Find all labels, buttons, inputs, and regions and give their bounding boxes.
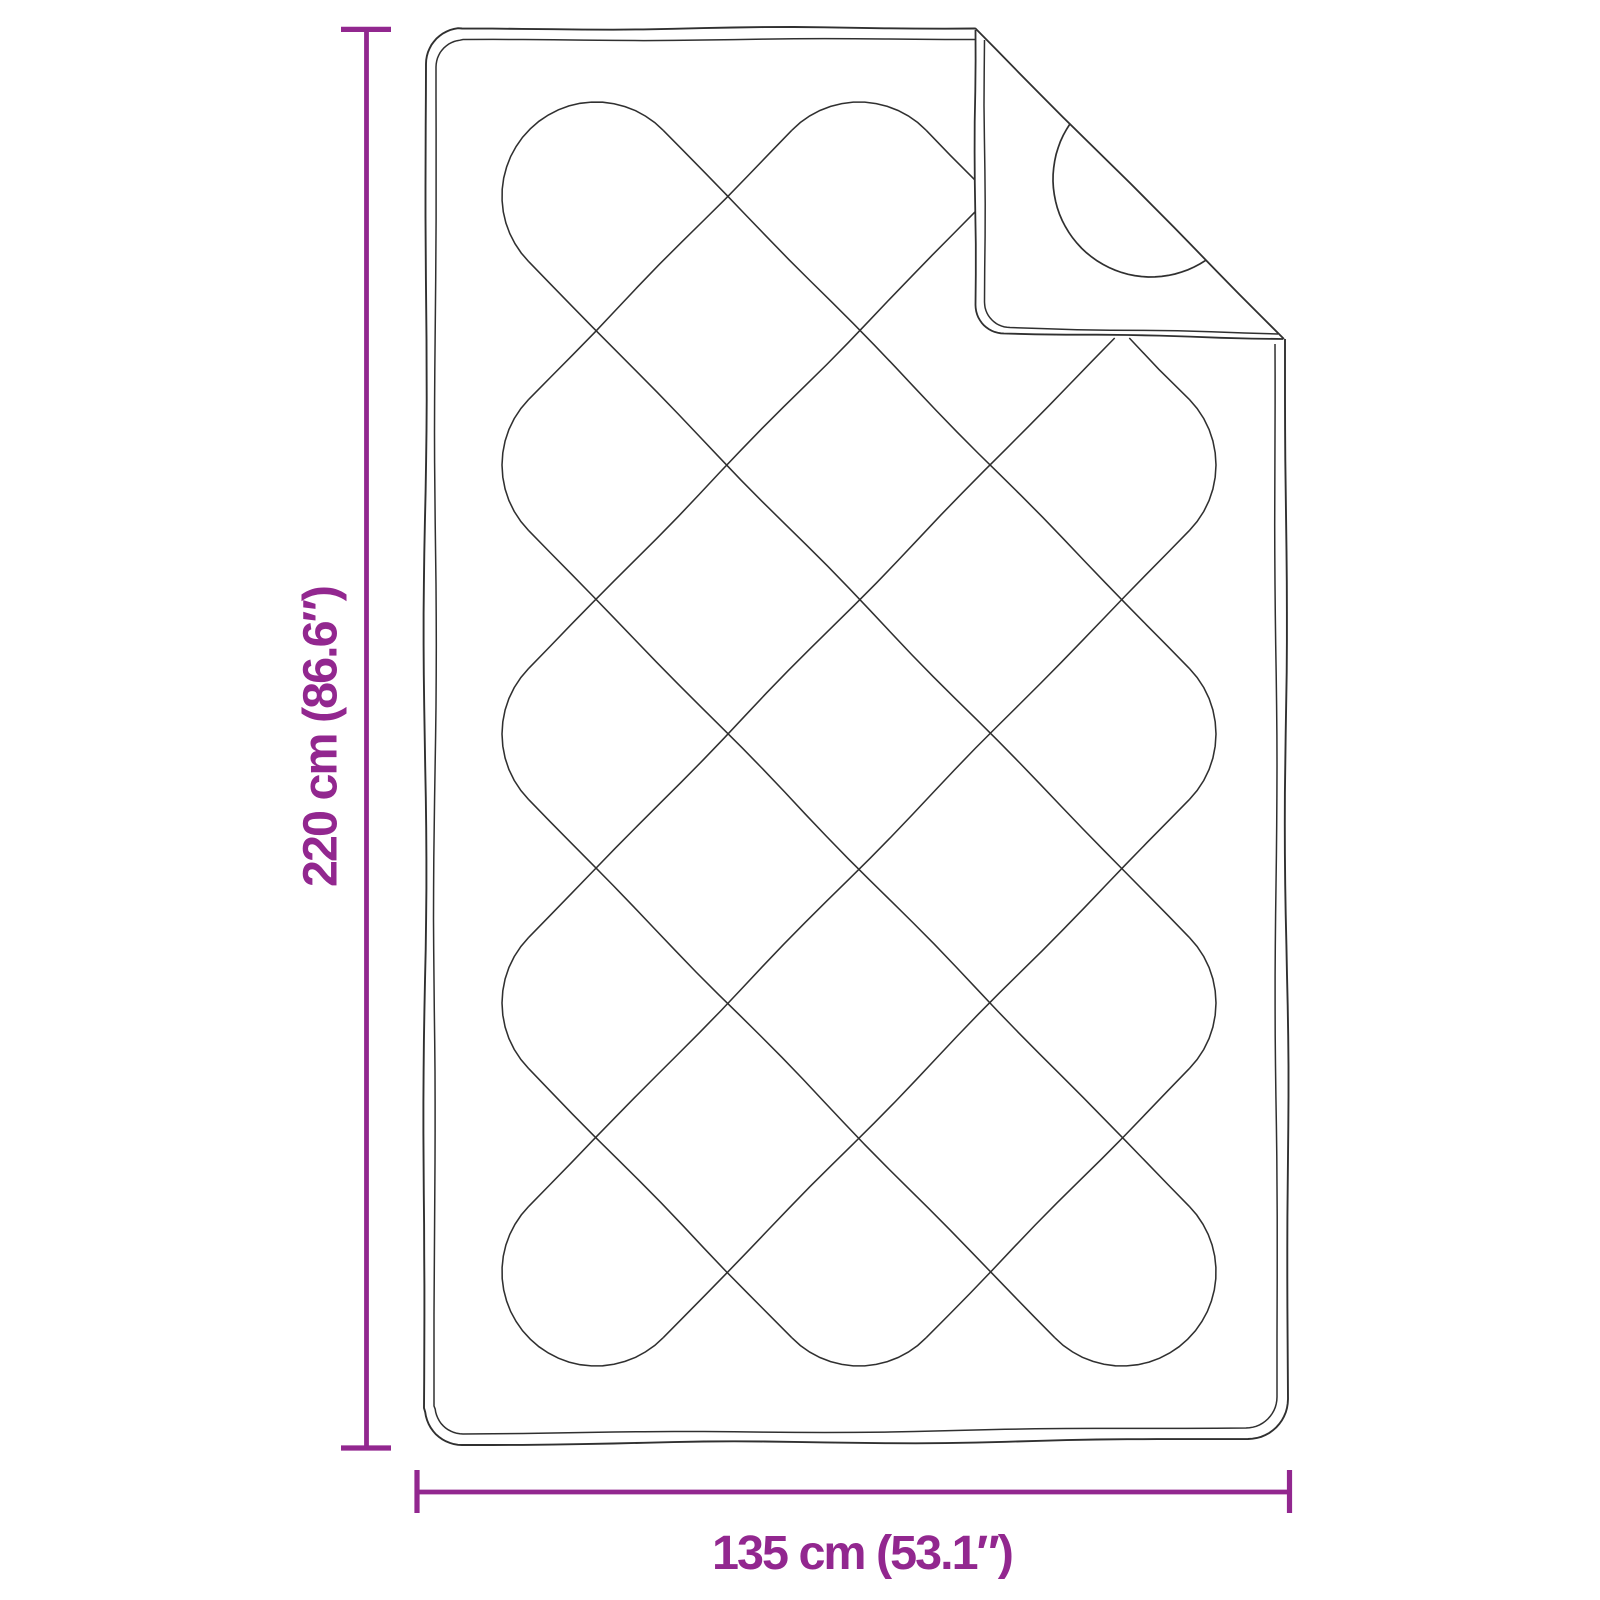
svg-text:135 cm (53.1″): 135 cm (53.1″) bbox=[712, 1526, 1012, 1580]
svg-text:220 cm (86.6″): 220 cm (86.6″) bbox=[294, 587, 348, 887]
